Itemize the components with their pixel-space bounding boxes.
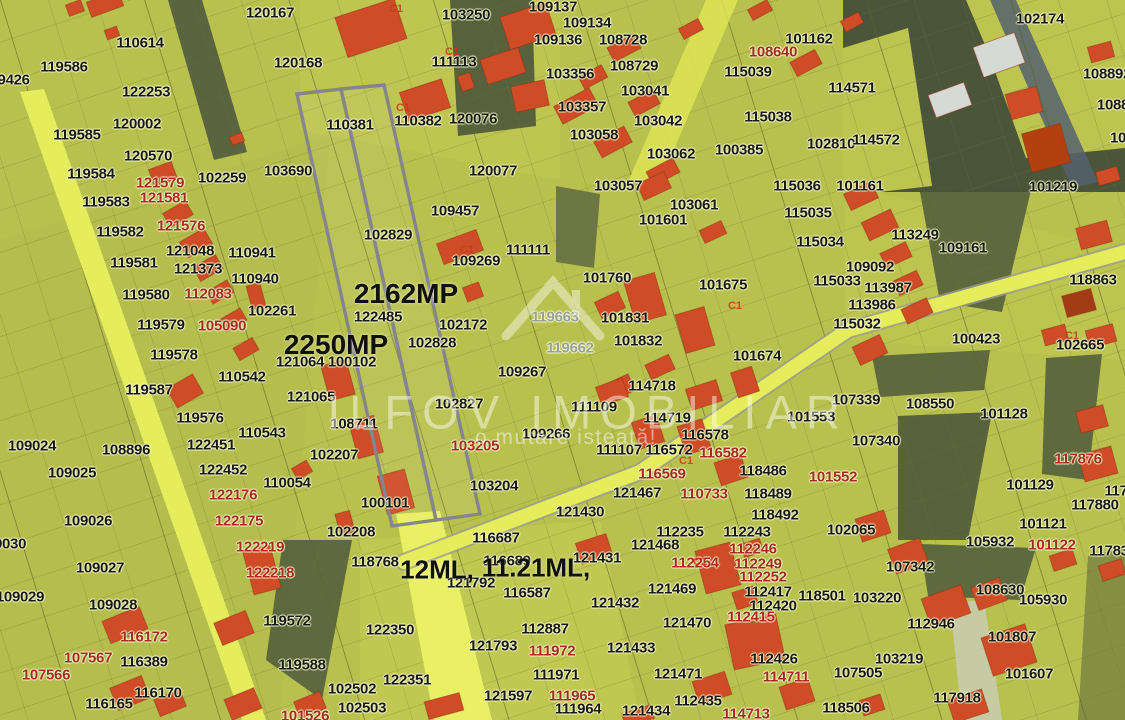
parcel-label: 119588 [278,657,325,674]
parcel-label: 113249 [891,227,938,244]
parcel-label: 102829 [364,227,412,244]
parcel-label: 110940 [231,271,278,288]
parcel-label: 102827 [435,396,483,413]
parcel-label: 107342 [886,559,934,576]
parcel-label: 112887 [521,621,568,638]
parcel-label: 121470 [663,615,711,632]
parcel-label: 120077 [469,163,517,180]
parcel-label: 107567 [64,650,112,667]
parcel-label: 107340 [852,433,900,450]
parcel-label: 101162 [785,31,832,48]
parcel-label: 102065 [827,522,875,539]
parcel-label: 120167 [246,5,294,22]
parcel-label: 102207 [310,447,358,464]
parcel-label: 116687 [472,530,519,547]
parcel-label: 116587 [503,585,550,602]
parcel-label: 116389 [120,654,167,671]
parcel-label: 107566 [22,667,70,684]
parcel-label: 118506 [822,700,869,717]
parcel-label: 121434 [622,703,670,720]
building-mark-c1: C1 [693,556,707,568]
parcel-label: 102174 [1016,11,1064,28]
parcel-label: 102810 [807,136,855,153]
parcel-label: 109026 [64,513,112,530]
parcel-label: 112083 [184,286,231,303]
parcel-label: 101807 [988,629,1036,646]
parcel-label: 100423 [952,331,1000,348]
parcel-label: 119662 [546,340,593,357]
parcel-label: 105932 [966,534,1014,551]
parcel-label: 109137 [529,0,577,16]
parcel-label: 119578 [150,347,197,364]
parcel-label: 112415 [727,609,774,626]
parcel-label: 109024 [8,438,56,455]
parcel-label: 101760 [583,270,631,287]
parcel-label: 122451 [187,437,235,454]
parcel-label: 109457 [431,203,479,220]
parcel-label: 102172 [439,317,487,334]
parcel-label: 122253 [122,84,170,101]
parcel-label: 121048 [166,243,214,260]
parcel-label: 113987 [864,280,911,297]
parcel-label: 121469 [648,581,696,598]
parcel-label: 121597 [484,688,532,705]
parcel-label: 1088 [1097,97,1125,114]
parcel-label: 108729 [610,58,658,75]
parcel-label: 115035 [784,205,831,222]
parcel-label: 108711 [330,416,377,433]
building-mark-c1: C1 [460,244,474,256]
parcel-label: 109029 [0,589,44,606]
parcel-frontage-label: 11.21ML, [482,553,590,584]
parcel-label: 114711 [763,669,810,686]
parcel-label: 122218 [246,565,294,582]
parcel-label: 109267 [498,364,546,381]
parcel-label: 115032 [833,316,880,333]
parcel-label: 101161 [836,178,883,195]
parcel-label: 109092 [846,259,894,276]
parcel-label: 111971 [533,667,580,684]
parcel-label: 118489 [744,486,791,503]
parcel-label: 103062 [647,146,695,163]
parcel-label: 109161 [939,240,987,257]
building-mark-c1: C1 [679,455,693,467]
parcel-label: 119572 [263,613,310,630]
parcel-label: 119576 [176,410,223,427]
parcel-label: 119585 [53,127,100,144]
parcel-label: 102665 [1056,337,1104,354]
parcel-label: 122175 [215,513,263,530]
parcel-label: 105930 [1019,592,1067,609]
parcel-label: 121430 [556,504,604,521]
parcel-label: 101219 [1029,179,1077,196]
parcel-label: 109136 [534,32,582,49]
parcel-label: 109266 [522,426,570,443]
parcel-label: 103057 [594,178,642,195]
parcel-label: 108896 [102,442,150,459]
parcel-label: 122452 [199,462,247,479]
building-mark-c1: C1 [728,300,742,312]
parcel-frontage-label: 12ML, [400,555,474,586]
parcel-label: 102502 [328,681,376,698]
parcel-label: 121581 [140,190,188,207]
parcel-label: 110381 [326,117,373,134]
parcel-label: 122219 [236,539,284,556]
parcel-label: 116569 [638,466,685,483]
parcel-label: 118863 [1069,272,1116,289]
building-mark-c1: C1 [1065,330,1079,342]
parcel-label: 115038 [744,109,791,126]
parcel-label: 102208 [327,524,375,541]
parcel-label: 116172 [120,629,167,646]
parcel-label: 102261 [248,303,296,320]
parcel-label: 115036 [773,178,820,195]
parcel-label: 103220 [853,590,901,607]
parcel-label: 101831 [601,310,649,327]
parcel-area-label: 2162MP [354,278,458,310]
parcel-label: 111972 [529,643,576,660]
parcel-label: 100385 [715,142,763,159]
parcel-label: 108550 [906,396,954,413]
parcel-label: 111107 [596,442,642,459]
parcel-label: 116582 [699,445,746,462]
parcel-label: 119581 [110,255,157,272]
parcel-label: 112426 [750,651,797,668]
parcel-label: 121793 [469,638,517,655]
parcel-label: 103250 [442,7,490,24]
parcel-label: 114719 [643,410,690,427]
parcel-label: 119586 [40,59,87,76]
parcel-label: 103356 [546,66,594,83]
parcel-label: 103205 [451,438,499,455]
parcel-label: 101675 [699,277,747,294]
parcel-label: 119663 [531,309,578,326]
parcel-label: 101128 [980,406,1027,423]
parcel-label: 110941 [228,245,275,262]
parcel-label: 121373 [174,261,222,278]
building-mark-c1: C1 [396,102,410,114]
parcel-label: 114572 [852,132,899,149]
parcel-label: 120570 [124,148,172,165]
parcel-label: 122176 [209,487,257,504]
parcel-label: 103042 [634,113,682,130]
parcel-label: 1178 [1104,483,1125,500]
parcel-label: 108892 [1083,66,1125,83]
parcel-label: 110382 [394,113,441,130]
parcel-label: 119579 [137,317,184,334]
parcel-label: 113986 [848,297,895,314]
parcel-label: 101526 [281,708,329,720]
parcel-label: 118492 [751,507,798,524]
parcel-label: 119583 [82,194,129,211]
parcel-label: 105090 [198,318,246,335]
parcel-label: 121576 [157,218,205,235]
parcel-label: 110054 [263,475,310,492]
parcel-label: 115034 [796,234,843,251]
parcel-label: 117876 [1054,451,1101,468]
parcel-label: 120076 [449,111,497,128]
parcel-label: 120168 [274,55,322,72]
parcel-label: 103041 [621,83,669,100]
parcel-label: 101553 [787,409,835,426]
parcel-label: 101607 [1005,666,1053,683]
parcel-label: 110614 [116,35,163,52]
parcel-label: 100101 [361,495,409,512]
parcel-label: 119584 [67,166,114,183]
parcel-label: 11783 [1089,543,1125,560]
parcel-label: 109030 [0,536,26,553]
parcel-label: 103058 [570,127,618,144]
parcel-label: 118768 [351,554,398,571]
parcel-label: 121432 [591,595,639,612]
parcel-label: 121467 [613,485,661,502]
parcel-label: 101129 [1006,477,1053,494]
parcel-label: 103204 [470,478,518,495]
parcel-label: 110543 [238,425,285,442]
parcel-label: 111111 [506,242,550,259]
parcel-label: 102503 [338,700,386,717]
parcel-label: 119587 [125,382,172,399]
parcel-label: 112946 [907,616,954,633]
parcel-label: 111109 [571,399,617,416]
parcel-label: 121433 [607,640,655,657]
parcel-label: 110542 [218,369,265,386]
parcel-label: 103357 [558,99,606,116]
building-mark-c1: C1 [389,3,403,15]
parcel-label: 122350 [366,622,414,639]
parcel-label: 107505 [834,665,882,682]
parcel-label: 101122 [1028,537,1075,554]
parcel-label: 115039 [724,64,771,81]
parcel-label: 101552 [809,469,857,486]
parcel-label: 114718 [628,378,675,395]
parcel-label: 108728 [599,32,647,49]
parcel-label: 101121 [1019,516,1066,533]
parcel-label: 120002 [113,116,161,133]
parcel-label: 114571 [828,80,875,97]
parcel-label: 109025 [48,465,96,482]
parcel-label: 112435 [674,693,721,710]
parcel-label: 109027 [76,560,124,577]
parcel-area-label: 2250MP [284,329,388,361]
parcel-label: 116170 [134,685,181,702]
parcel-label: 119582 [96,224,143,241]
parcel-label: 107339 [832,392,880,409]
parcel-label: 116165 [85,696,132,713]
parcel-label: 111964 [555,701,602,718]
parcel-label: 121065 [287,389,335,406]
parcel-label: 121471 [654,666,702,683]
building-mark-c1: C1 [445,46,459,58]
parcel-label: 109028 [89,597,137,614]
parcel-label: 117918 [933,690,980,707]
parcel-label: 122351 [383,672,431,689]
parcel-label: 114713 [722,706,769,720]
parcel-label: 119580 [122,287,169,304]
parcel-label: 118486 [739,463,786,480]
parcel-label: 108630 [976,582,1024,599]
parcel-label: 10 [1110,130,1125,147]
parcel-label: 102259 [198,170,246,187]
parcel-label: 121468 [631,537,679,554]
parcel-label: 110733 [680,486,727,503]
parcel-label: 122485 [354,309,402,326]
parcel-label: 101832 [614,333,662,350]
parcel-label: 101674 [733,348,781,365]
parcel-label: 119426 [0,72,30,89]
parcel-label: 109134 [563,15,611,32]
parcel-label: 112243 [723,524,770,541]
parcel-label: 101601 [639,212,687,229]
parcel-label: 118501 [798,588,845,605]
cadastral-map-canvas[interactable]: 1194261106141195861222531200021195851205… [0,0,1125,720]
parcel-labels-layer: 1194261106141195861222531200021195851205… [0,0,1125,720]
parcel-label: 103690 [264,163,312,180]
parcel-label: 102828 [408,335,456,352]
